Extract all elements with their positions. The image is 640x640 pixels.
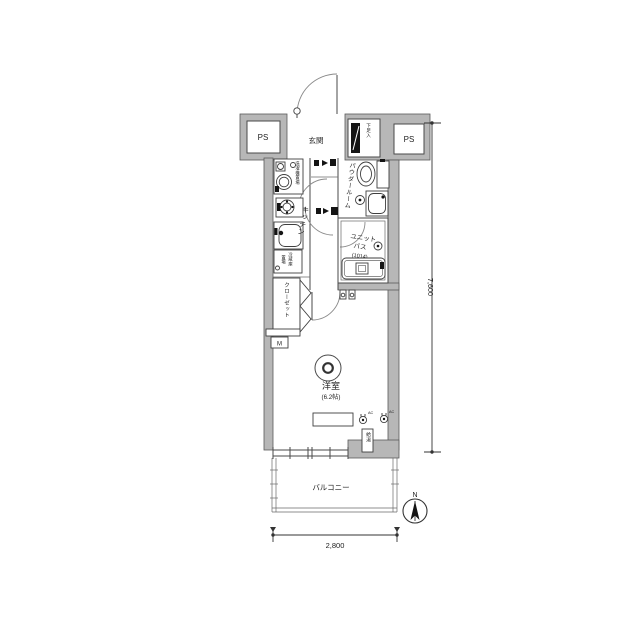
washer-space: 洗濯機置場 [274, 159, 303, 194]
door-closer-glyphs [314, 159, 338, 215]
counter-outline [313, 413, 353, 426]
dimension-horizontal-label: 2,800 [326, 541, 345, 550]
wall-switch-glyphs [340, 290, 355, 299]
main-room-size-label: (6.2帖) [322, 393, 341, 401]
stove [276, 198, 303, 217]
ac-outlet-1: AC [359, 411, 373, 424]
entrance-door [294, 74, 337, 118]
entrance-label: 玄関 [309, 135, 324, 145]
dimension-horizontal: 2,800 [270, 527, 400, 550]
powder-sink [356, 191, 389, 216]
ps-left-label: PS [258, 133, 269, 142]
ps-right-label: PS [404, 135, 415, 144]
pipe-space-right: PS [394, 124, 424, 154]
closet: クローゼット [273, 278, 311, 332]
closet-label: クローゼット [283, 282, 290, 318]
ac-label-1: AC [368, 411, 374, 415]
fridge-space: 冷蔵庫 置場 [274, 250, 302, 273]
fridge-space-label-2: 置場 [281, 255, 287, 266]
main-room-label: 洋室 [322, 380, 340, 391]
ac-label-2: AC [389, 410, 395, 414]
north-compass: N [403, 492, 427, 523]
fridge-space-label-1: 冷蔵庫 [288, 251, 294, 268]
powder-room-label: パウダールーム [343, 162, 356, 209]
bathtub [342, 258, 385, 279]
meter-box: M [266, 329, 300, 348]
dimension-vertical: 7,600 [424, 121, 441, 453]
pipe-space-left: PS [247, 121, 280, 153]
floorplan-svg: PS PS 玄関 下足入 [0, 0, 640, 640]
ceiling-light [315, 355, 341, 381]
north-label: N [412, 492, 417, 499]
floorplan-canvas: PS PS 玄関 下足入 [0, 0, 640, 640]
balcony-label: バルコニー [312, 483, 349, 492]
dimension-vertical-label: 7,600 [426, 278, 435, 296]
shoe-cupboard: 下足入 [348, 119, 380, 157]
water-heater: 給湯 [362, 429, 373, 452]
meter-box-label: M [277, 342, 282, 348]
shoe-cupboard-label: 下足入 [366, 123, 372, 138]
unit-bath-label-2: バス [353, 242, 367, 252]
toilet [357, 159, 389, 188]
washer-space-label: 洗濯機置場 [295, 160, 301, 186]
water-heater-label: 給湯 [365, 431, 370, 443]
balcony-window [273, 447, 348, 459]
